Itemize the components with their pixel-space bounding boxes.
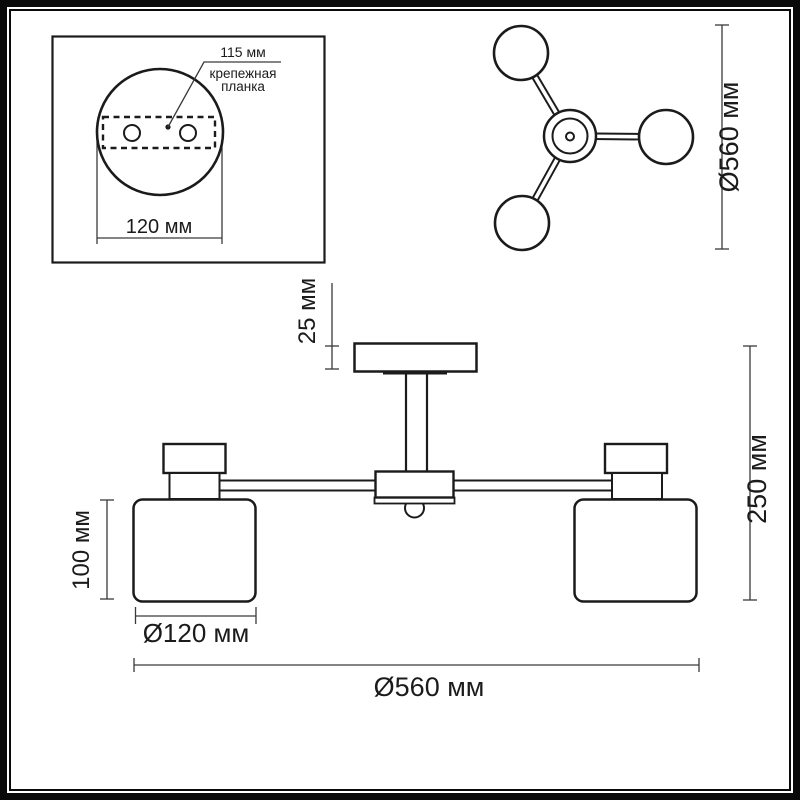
shade-right bbox=[639, 110, 693, 164]
mounting-plate-detail-view: 115 мм крепежная планка 120 мм bbox=[53, 37, 325, 263]
canopy-base-strip bbox=[383, 371, 447, 375]
ceiling-canopy bbox=[355, 344, 477, 372]
left-cylinder-shade bbox=[134, 500, 256, 602]
dimension-250: 250 мм bbox=[742, 346, 772, 600]
shade-top bbox=[494, 26, 548, 80]
hub-center-hole bbox=[566, 133, 574, 141]
canopy-circle bbox=[97, 69, 223, 195]
left-socket-neck bbox=[170, 473, 220, 499]
left-socket-cap bbox=[164, 444, 226, 473]
dimension-drawing: 115 мм крепежная планка 120 мм bbox=[0, 0, 800, 800]
total-height-label: 250 мм bbox=[742, 434, 772, 524]
plate-width-label: 120 мм bbox=[126, 216, 192, 238]
total-diameter-label: Ø560 мм bbox=[374, 672, 485, 702]
topview-diameter-label: Ø560 мм bbox=[714, 82, 744, 193]
shade-height-label: 100 мм bbox=[68, 510, 95, 590]
hole-spacing-label: 115 мм bbox=[220, 44, 265, 60]
chandelier-side-view: 25 мм bbox=[68, 278, 772, 702]
dimension-560-sideview: Ø560 мм bbox=[134, 658, 699, 702]
shade-bottom bbox=[495, 196, 549, 250]
central-hub-box bbox=[376, 472, 454, 498]
diagram-canvas: 115 мм крепежная планка 120 мм bbox=[0, 0, 800, 800]
dimension-100: 100 мм bbox=[68, 500, 114, 599]
screw-hole-right bbox=[180, 125, 196, 141]
right-socket-neck bbox=[612, 473, 662, 499]
shade-diameter-label: Ø120 мм bbox=[143, 618, 250, 648]
canopy-height-label: 25 мм bbox=[294, 278, 321, 344]
down-rod bbox=[406, 374, 427, 472]
part-label-line2: планка bbox=[221, 79, 265, 94]
left-lamp-assembly bbox=[134, 444, 256, 602]
screw-hole-left bbox=[124, 125, 140, 141]
right-cylinder-shade bbox=[575, 500, 697, 602]
dimension-25: 25 мм bbox=[294, 278, 339, 369]
dimension-120-shade: Ø120 мм bbox=[136, 607, 257, 648]
dimension-560-topview: Ø560 мм bbox=[714, 25, 744, 249]
right-socket-cap bbox=[605, 444, 667, 473]
chandelier-top-view: Ø560 мм bbox=[494, 25, 744, 250]
right-lamp-assembly bbox=[575, 444, 697, 602]
